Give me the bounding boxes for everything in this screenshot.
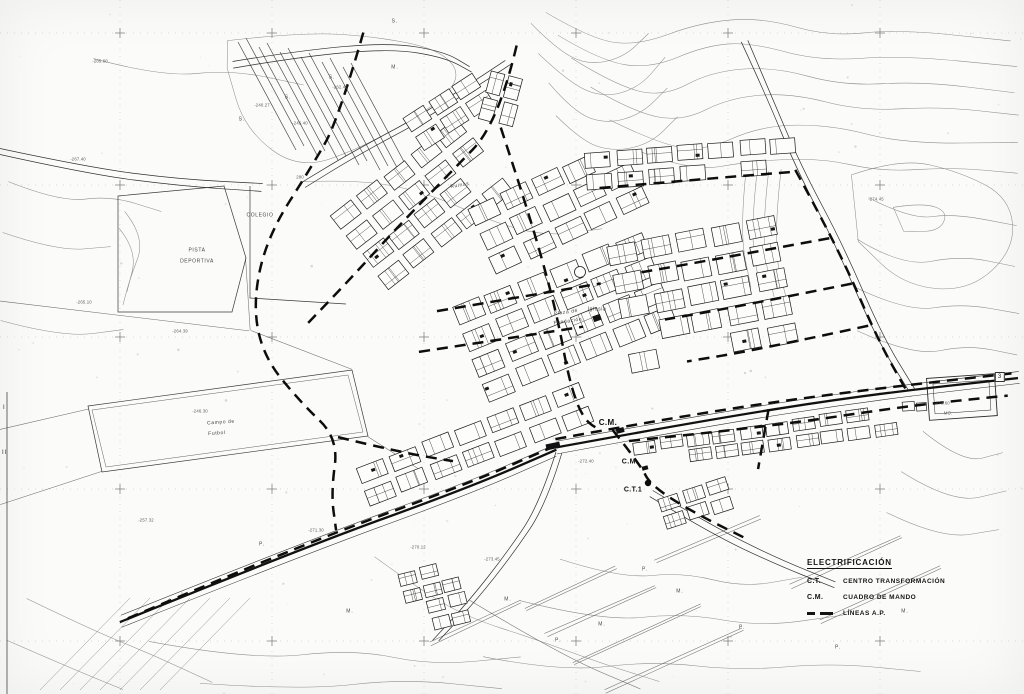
town-block xyxy=(562,406,594,431)
town-block xyxy=(419,564,438,580)
town-block xyxy=(489,246,522,274)
town-block xyxy=(346,220,377,249)
town-block xyxy=(796,433,819,448)
town-block xyxy=(677,144,703,161)
round-building xyxy=(575,267,586,278)
town-block xyxy=(584,152,610,169)
legend-rows: C.T.CENTRO TRANSFORMACIÓNC.M.CUADRO DE M… xyxy=(793,578,1013,617)
town-block xyxy=(689,447,712,462)
town-block xyxy=(681,257,712,281)
town-block xyxy=(396,467,428,492)
building-blocks xyxy=(330,71,898,630)
town-block xyxy=(715,251,746,275)
town-block xyxy=(675,228,706,252)
town-block xyxy=(767,323,798,347)
electrification-legend: ELECTRIFICACIÓN C.T.CENTRO TRANSFORMACIÓ… xyxy=(793,552,1013,626)
town-block xyxy=(580,332,613,360)
town-block xyxy=(570,307,603,335)
town-block xyxy=(519,396,551,421)
town-block xyxy=(819,412,842,427)
town-block xyxy=(398,571,417,587)
town-block xyxy=(472,349,505,377)
town-block xyxy=(720,276,751,300)
town-block xyxy=(647,147,673,164)
town-block xyxy=(330,200,361,229)
town-block xyxy=(363,238,394,267)
town-block xyxy=(617,149,643,166)
legend-title: ELECTRIFICACIÓN xyxy=(807,558,892,569)
legend-item-lineas-ap: LÍNEAS A.P. xyxy=(807,610,1013,617)
town-block xyxy=(683,485,706,504)
town-block xyxy=(641,235,672,259)
ap-power-lines xyxy=(128,33,1016,619)
town-block xyxy=(711,223,742,247)
town-block xyxy=(403,588,422,604)
equipment-symbols xyxy=(546,427,652,486)
town-block xyxy=(416,124,445,150)
town-block xyxy=(462,442,494,467)
town-block xyxy=(486,71,505,96)
legend-item-label: CUADRO DE MANDO xyxy=(843,594,916,601)
town-block xyxy=(384,161,415,190)
cuadro-mando-mark xyxy=(642,465,649,470)
town-block xyxy=(454,421,486,446)
town-block xyxy=(518,272,551,300)
legend-item-cm: C.M.CUADRO DE MANDO xyxy=(807,594,1013,601)
town-block xyxy=(503,76,522,101)
town-block xyxy=(432,614,451,630)
town-block xyxy=(706,477,729,496)
town-block xyxy=(422,432,454,457)
town-block xyxy=(708,142,734,159)
town-block xyxy=(584,201,617,229)
scanned-town-electrification-map: COLEGIOPISTADEPORTIVACampo deFutbolRuina… xyxy=(0,0,1024,694)
town-block xyxy=(616,186,649,214)
town-block xyxy=(509,206,542,234)
ap-lines-dash-symbol xyxy=(807,610,843,617)
town-block xyxy=(688,282,719,306)
town-block xyxy=(552,383,584,408)
town-block xyxy=(426,597,445,613)
town-block xyxy=(663,511,686,530)
town-block xyxy=(607,242,638,266)
town-block xyxy=(423,582,442,598)
town-block xyxy=(539,322,572,350)
strip-fields xyxy=(238,38,409,175)
town-block xyxy=(463,324,496,352)
town-block xyxy=(448,591,467,607)
town-block xyxy=(453,138,484,167)
town-block xyxy=(768,437,791,452)
town-block xyxy=(532,167,565,195)
town-block xyxy=(425,160,456,189)
town-block xyxy=(792,416,815,431)
town-block xyxy=(451,610,470,626)
town-block xyxy=(499,102,518,127)
town-block xyxy=(847,426,870,441)
town-block xyxy=(875,422,898,437)
junction-mark xyxy=(546,442,561,451)
legend-item-label: CENTRO TRANSFORMACIÓN xyxy=(843,578,945,585)
town-block xyxy=(453,297,486,325)
town-block xyxy=(495,432,527,457)
town-block xyxy=(820,429,843,444)
town-block xyxy=(496,309,529,337)
town-block xyxy=(378,260,409,289)
town-block xyxy=(356,459,388,484)
field-boundaries xyxy=(0,258,941,693)
town-block xyxy=(487,408,519,433)
town-block xyxy=(543,194,576,222)
town-block xyxy=(613,319,646,347)
legend-item-ct: C.T.CENTRO TRANSFORMACIÓN xyxy=(807,578,1013,585)
town-block xyxy=(628,349,659,373)
town-block xyxy=(711,496,734,515)
legend-symbol: C.M. xyxy=(807,594,843,601)
town-block xyxy=(555,216,588,244)
town-block xyxy=(750,242,781,266)
town-block xyxy=(633,440,656,455)
town-block xyxy=(431,218,462,247)
centro-transformacion-mark xyxy=(645,480,651,486)
town-block xyxy=(480,222,513,250)
town-block xyxy=(516,358,549,386)
dash-line-icon xyxy=(807,612,833,615)
legend-symbol: C.T. xyxy=(807,578,843,585)
town-block xyxy=(715,444,738,459)
legend-item-label: LÍNEAS A.P. xyxy=(843,610,886,617)
town-block xyxy=(403,105,432,131)
town-block xyxy=(770,138,796,155)
town-block xyxy=(452,73,481,99)
town-block xyxy=(440,178,471,207)
town-block xyxy=(482,374,515,402)
town-block xyxy=(364,481,396,506)
town-block xyxy=(756,268,787,292)
town-block xyxy=(746,216,777,240)
town-block xyxy=(740,139,766,156)
town-block xyxy=(442,577,461,593)
